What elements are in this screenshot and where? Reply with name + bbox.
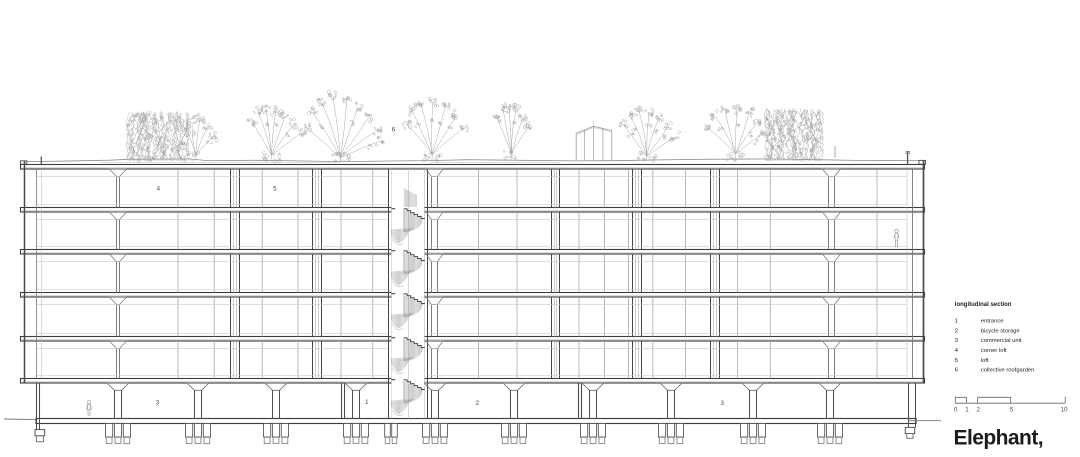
svg-text:3: 3 — [156, 399, 160, 406]
svg-text:entrance: entrance — [981, 318, 1004, 324]
svg-text:corner loft: corner loft — [981, 348, 1007, 354]
svg-text:1: 1 — [365, 399, 369, 406]
svg-text:5: 5 — [955, 358, 958, 364]
svg-text:3: 3 — [955, 338, 958, 344]
svg-text:2: 2 — [977, 407, 981, 414]
svg-text:1: 1 — [955, 318, 958, 324]
svg-text:10: 10 — [1060, 407, 1068, 414]
svg-text:1: 1 — [965, 407, 969, 414]
svg-text:commercial unit: commercial unit — [981, 338, 1022, 344]
svg-text:6: 6 — [392, 127, 396, 134]
svg-text:4: 4 — [157, 185, 161, 192]
svg-text:collective roofgarden: collective roofgarden — [981, 368, 1035, 374]
svg-text:3: 3 — [721, 400, 725, 407]
svg-text:0: 0 — [954, 407, 958, 414]
svg-text:2: 2 — [476, 400, 480, 407]
svg-text:Elephant,: Elephant, — [954, 427, 1044, 450]
svg-text:bicycle storage: bicycle storage — [981, 328, 1020, 334]
svg-text:2: 2 — [955, 328, 958, 334]
svg-text:5: 5 — [1010, 407, 1014, 414]
svg-text:5: 5 — [273, 186, 277, 193]
svg-text:loft: loft — [981, 358, 989, 364]
svg-text:longitudinal section: longitudinal section — [955, 302, 1012, 308]
svg-text:6: 6 — [955, 368, 958, 374]
